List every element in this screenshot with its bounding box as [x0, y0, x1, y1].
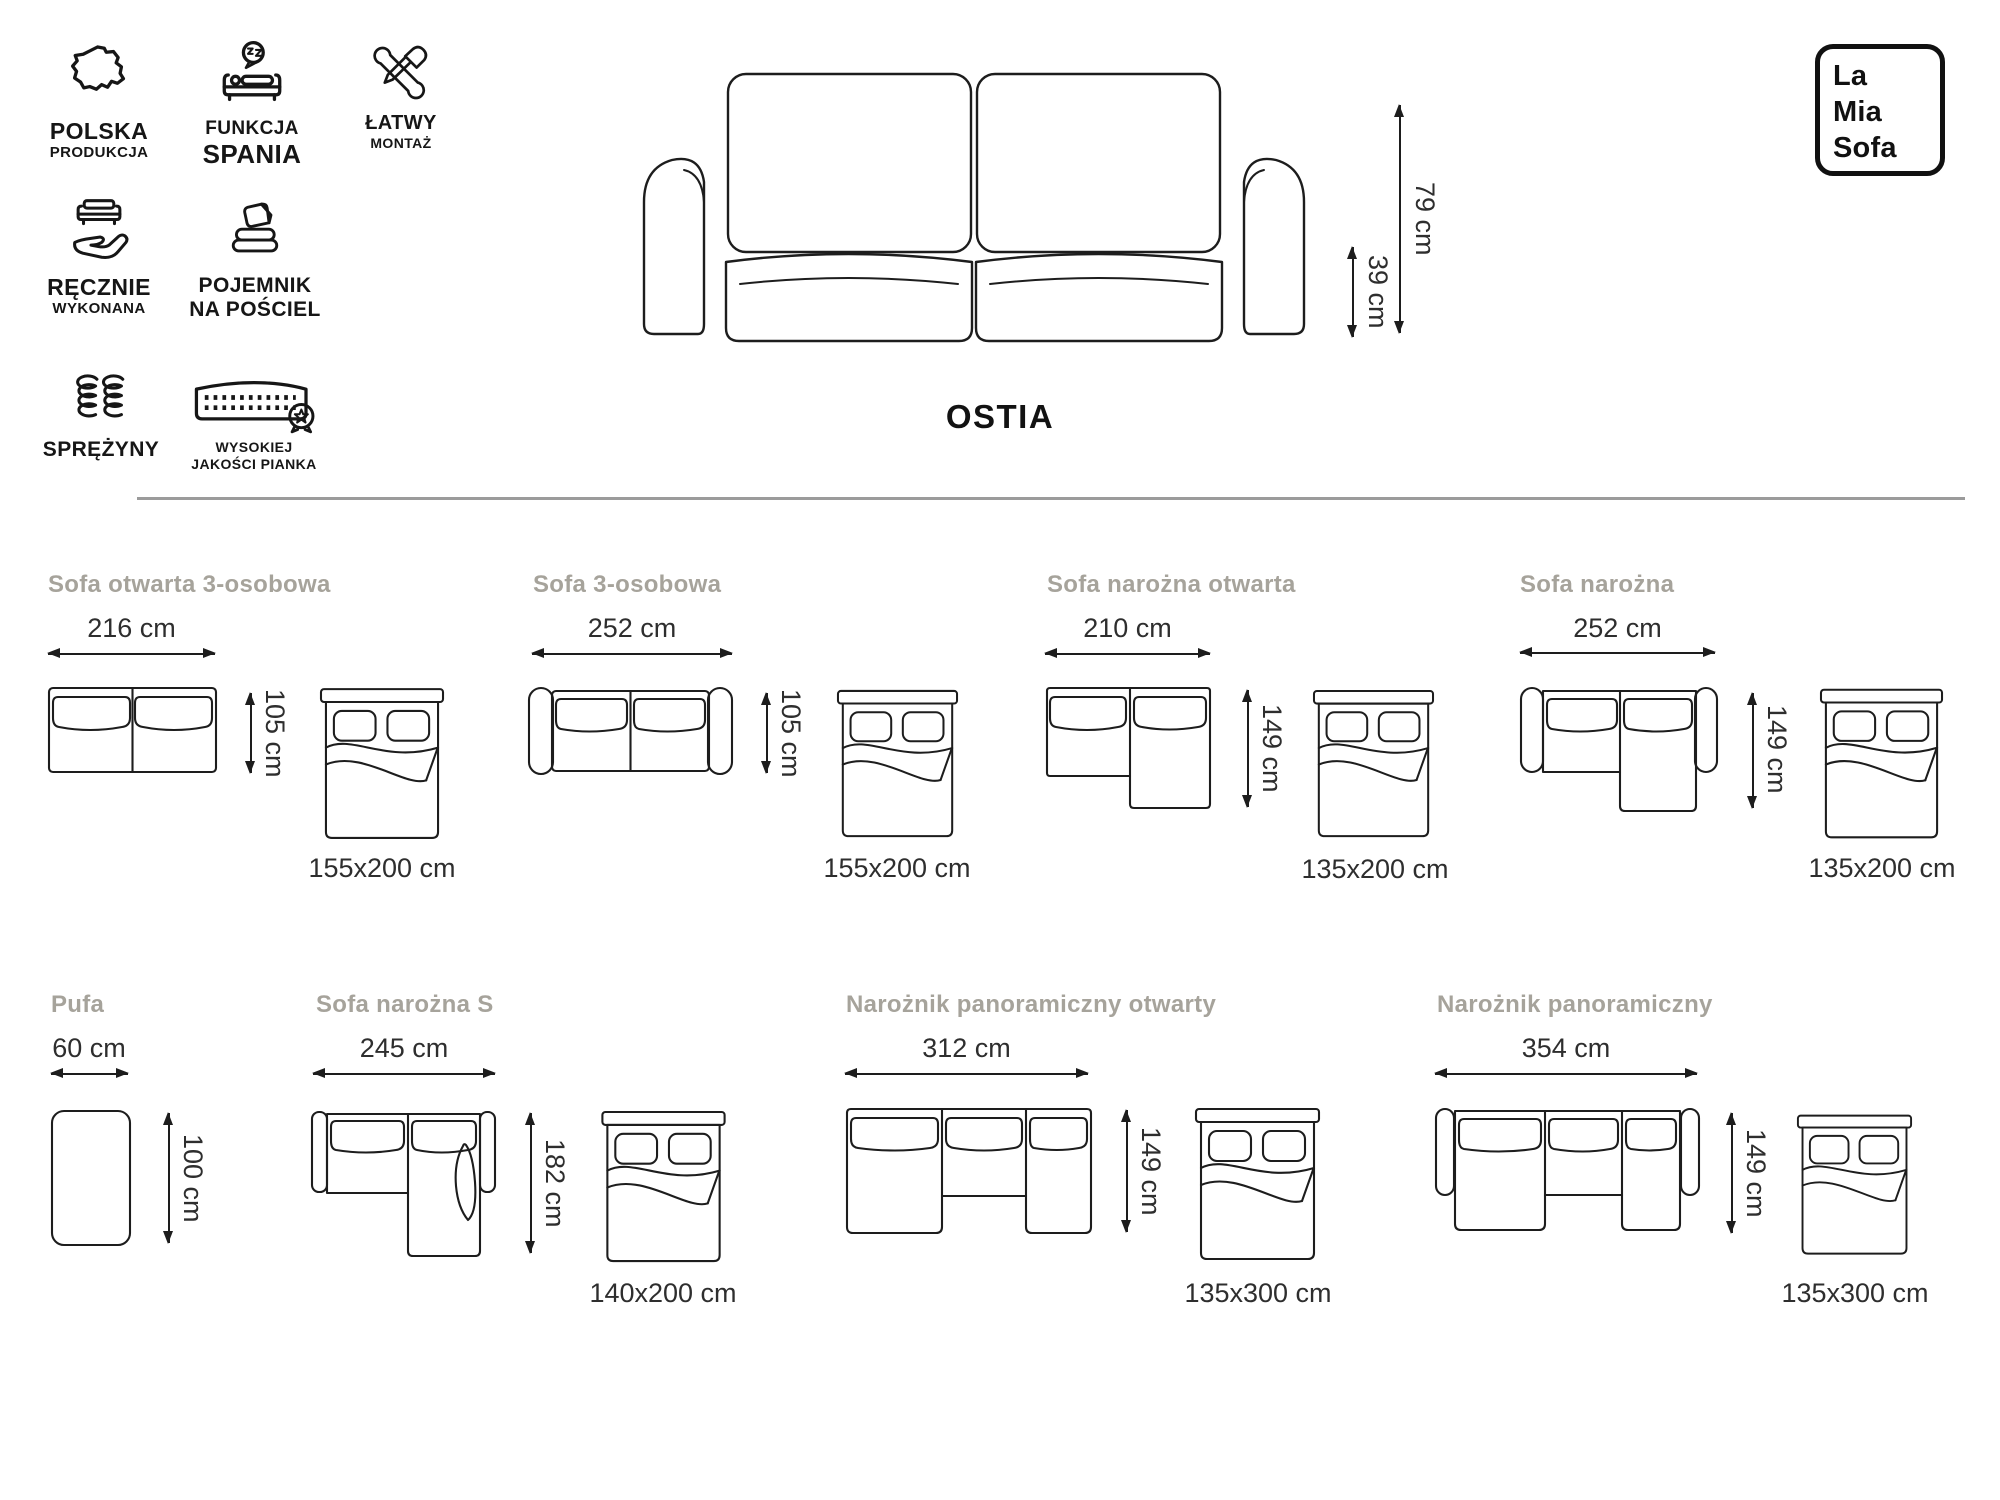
total-height-arrow: [1399, 105, 1401, 333]
feature-pojemnik-na-posciel: POJEMNIK NA POŚCIEL: [182, 198, 328, 322]
feature-sublabel: MONTAŻ: [350, 135, 452, 152]
bed-size-label: 135x200 cm: [1802, 853, 1962, 884]
seat-height-arrow: [1352, 247, 1354, 337]
width-dimension-label: 354 cm: [1435, 1033, 1697, 1064]
feature-label: POJEMNIK: [182, 274, 328, 298]
config-sofa-narozna-otwarta: Sofa narożna otwarta 210 cm 149 cm 135x2…: [1045, 569, 1485, 899]
pouf-top-view: [51, 1110, 131, 1246]
poland-map-icon: [66, 42, 132, 110]
brand-logo-line: La: [1833, 58, 1940, 94]
feature-label: ŁATWY: [350, 112, 452, 135]
springs-icon: [67, 372, 135, 430]
feature-sublabel: PRODUKCJA: [38, 144, 160, 162]
feature-recznie-wykonana: RĘCZNIE WYKONANA: [38, 198, 160, 318]
foam-quality-icon: [189, 376, 319, 432]
sofa-top-view: [1520, 687, 1718, 812]
width-dimension-label: 252 cm: [532, 613, 732, 644]
bed-top-view: [1195, 1108, 1320, 1263]
sofa-top-view: [1435, 1107, 1700, 1235]
config-naroznik-panoramiczny: Narożnik panoramiczny 354 cm 149 cm 135x…: [1435, 989, 1975, 1329]
section-divider: [137, 497, 1965, 500]
config-title: Narożnik panoramiczny: [1437, 991, 1713, 1019]
depth-dimension-arrow: [250, 693, 252, 773]
sofa-top-view: [845, 1107, 1093, 1236]
width-dimension-arrow: [51, 1073, 128, 1075]
feature-latwy-montaz: ŁATWY MONTAŻ: [350, 42, 452, 152]
config-sofa-narozna-s: Sofa narożna S 245 cm 182 cm 140x200 cm: [314, 989, 774, 1329]
config-sofa-3-osobowa: Sofa 3-osobowa 252 cm 105 cm 155x200 cm: [531, 569, 971, 899]
width-dimension-arrow: [532, 653, 732, 655]
bed-size-label: 135x200 cm: [1295, 854, 1455, 885]
bedding-storage-icon: [223, 198, 287, 268]
bed-top-view: [837, 688, 958, 842]
width-dimension-arrow: [48, 653, 215, 655]
config-naroznik-panoramiczny-otwarty: Narożnik panoramiczny otwarty 312 cm 149…: [844, 989, 1364, 1329]
depth-dimension-arrow: [1731, 1113, 1733, 1233]
width-dimension-label: 210 cm: [1045, 613, 1210, 644]
depth-dimension-label: 100 cm: [177, 1113, 208, 1243]
width-dimension-arrow: [845, 1073, 1088, 1075]
depth-dimension-arrow: [530, 1113, 532, 1253]
feature-sublabel: WYKONANA: [38, 300, 160, 318]
config-title: Sofa otwarta 3-osobowa: [48, 571, 331, 599]
feature-sublabel: SPANIA: [186, 140, 318, 170]
depth-dimension-arrow: [1126, 1110, 1128, 1232]
config-title: Narożnik panoramiczny otwarty: [846, 991, 1216, 1019]
bed-size-label: 140x200 cm: [583, 1278, 743, 1309]
bed-size-label: 155x200 cm: [817, 853, 977, 884]
width-dimension-label: 245 cm: [313, 1033, 495, 1064]
bed-size-label: 135x300 cm: [1775, 1278, 1935, 1309]
bed-top-view: [1820, 688, 1943, 842]
depth-dimension-label: 149 cm: [1761, 691, 1792, 808]
feature-label: SPRĘŻYNY: [38, 438, 164, 462]
width-dimension-arrow: [1045, 653, 1210, 655]
depth-dimension-arrow: [1247, 690, 1249, 807]
feature-funkcja-spania: FUNKCJA SPANIA: [186, 40, 318, 170]
depth-dimension-arrow: [766, 693, 768, 773]
width-dimension-arrow: [313, 1073, 495, 1075]
bed-top-view: [1797, 1110, 1912, 1262]
total-height-label: 79 cm: [1409, 105, 1440, 333]
sofa-top-view: [528, 687, 733, 775]
width-dimension-label: 252 cm: [1520, 613, 1715, 644]
depth-dimension-label: 149 cm: [1256, 690, 1287, 807]
seat-height-label: 39 cm: [1362, 247, 1393, 337]
feature-label: FUNKCJA: [186, 118, 318, 140]
bed-top-view: [320, 688, 444, 842]
sofa-top-view: [48, 687, 217, 773]
brand-logo-line: Sofa: [1833, 130, 1940, 166]
depth-dimension-label: 182 cm: [539, 1113, 570, 1253]
width-dimension-arrow: [1520, 652, 1715, 654]
config-title: Sofa 3-osobowa: [533, 571, 721, 599]
feature-sprezyny: SPRĘŻYNY: [38, 372, 164, 462]
width-dimension-arrow: [1435, 1073, 1697, 1075]
brand-logo: La Mia Sofa: [1815, 44, 1945, 176]
config-title: Sofa narożna otwarta: [1047, 571, 1296, 599]
depth-dimension-arrow: [168, 1113, 170, 1243]
feature-sublabel: NA POŚCIEL: [182, 298, 328, 322]
depth-dimension-label: 105 cm: [775, 688, 806, 778]
depth-dimension-arrow: [1752, 693, 1754, 808]
sofa-front-view: [640, 70, 1308, 348]
width-dimension-label: 60 cm: [39, 1033, 139, 1064]
bed-top-view: [601, 1111, 726, 1265]
bed-size-label: 135x300 cm: [1178, 1278, 1338, 1309]
config-sofa-narozna: Sofa narożna 252 cm 149 cm 135x200 cm: [1518, 569, 1978, 899]
sofa-top-view: [1045, 687, 1212, 810]
config-title: Pufa: [51, 991, 104, 1019]
bed-top-view: [1312, 690, 1435, 840]
easy-assembly-icon: [371, 42, 431, 104]
feature-sublabel: JAKOŚCI PIANKA: [178, 456, 330, 473]
config-title: Sofa narożna: [1520, 571, 1674, 599]
brand-logo-line: Mia: [1833, 94, 1940, 130]
width-dimension-label: 216 cm: [48, 613, 215, 644]
depth-dimension-label: 149 cm: [1740, 1113, 1771, 1233]
config-title: Sofa narożna S: [316, 991, 494, 1019]
config-sofa-otwarta-3-osobowa: Sofa otwarta 3-osobowa 216 cm 105 cm 155…: [46, 569, 486, 899]
config-pufa: Pufa 60 cm 100 cm: [49, 989, 269, 1319]
page: POLSKA PRODUKCJA FUNKCJA SPANIA ŁATWY MO…: [0, 0, 2000, 1500]
depth-dimension-label: 149 cm: [1135, 1110, 1166, 1232]
width-dimension-label: 312 cm: [845, 1033, 1088, 1064]
feature-wysokiej-jakosci-pianka: WYSOKIEJ JAKOŚCI PIANKA: [178, 376, 330, 473]
handmade-icon: [65, 198, 133, 268]
sofa-top-view: [311, 1110, 496, 1256]
feature-label: POLSKA: [38, 118, 160, 144]
depth-dimension-label: 105 cm: [259, 688, 290, 778]
feature-polska-produkcja: POLSKA PRODUKCJA: [38, 42, 160, 162]
product-name: OSTIA: [880, 398, 1120, 436]
sleep-function-icon: [219, 40, 285, 110]
bed-size-label: 155x200 cm: [302, 853, 462, 884]
feature-label: WYSOKIEJ: [178, 439, 330, 456]
feature-label: RĘCZNIE: [38, 274, 160, 300]
